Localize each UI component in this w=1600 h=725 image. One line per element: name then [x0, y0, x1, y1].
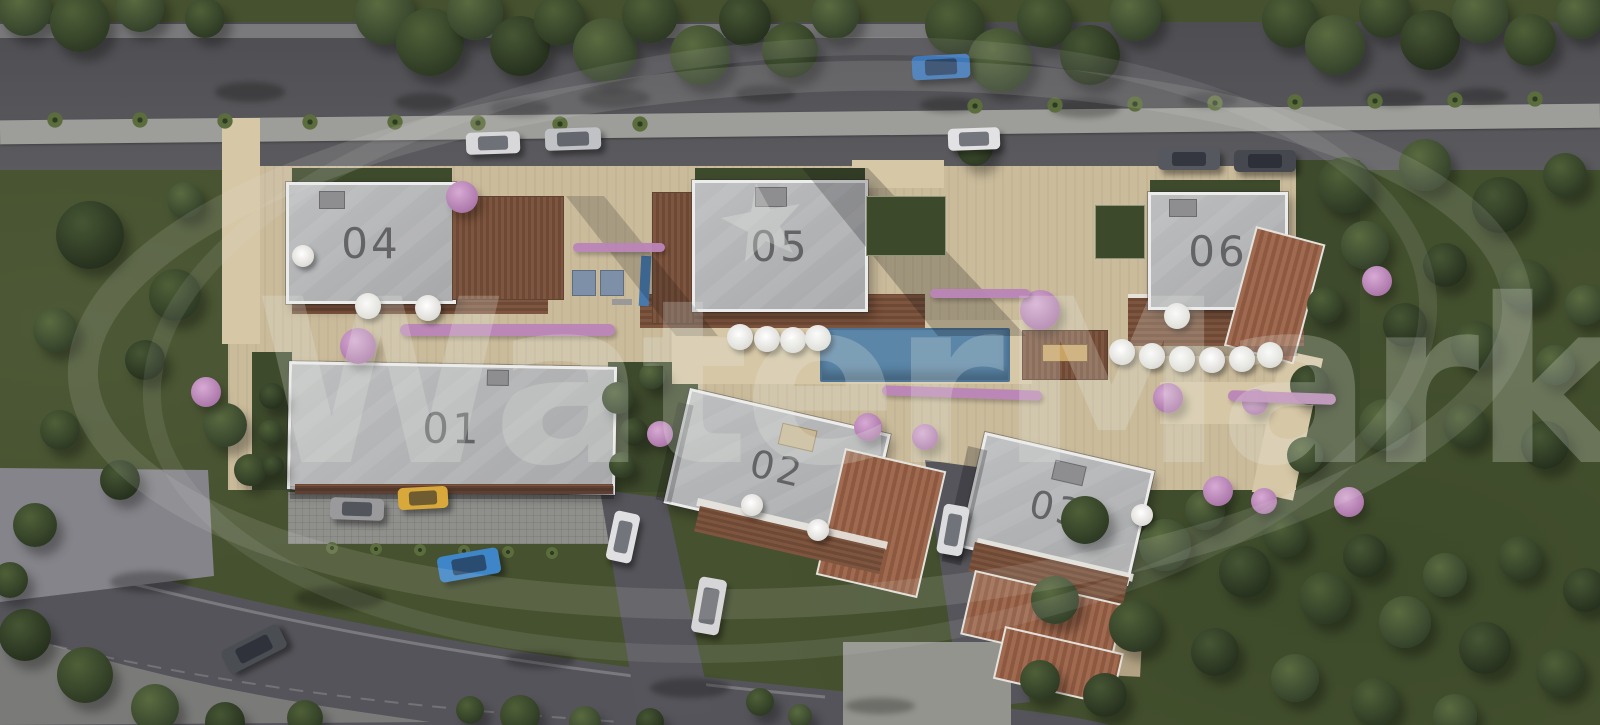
palm-tree — [46, 111, 64, 129]
tree — [1317, 157, 1373, 213]
ground-shadow — [845, 698, 915, 714]
tree — [262, 455, 284, 477]
umbrella — [741, 494, 763, 516]
ground-shadow — [580, 88, 650, 108]
tree — [639, 363, 665, 389]
palm-tree — [1446, 91, 1464, 109]
tree — [1504, 14, 1556, 66]
tree — [259, 383, 285, 409]
palm-tree — [1206, 94, 1224, 112]
car-glass — [450, 554, 487, 576]
umbrella — [355, 293, 381, 319]
tree — [33, 308, 77, 352]
tree — [50, 0, 110, 52]
palm-tree — [1046, 96, 1064, 114]
car-white-top-2 — [948, 127, 1001, 151]
umbrella — [805, 325, 831, 351]
tree — [1383, 303, 1427, 347]
umbrella — [1131, 504, 1153, 526]
tree — [1379, 596, 1431, 648]
tree — [0, 0, 51, 36]
tree — [762, 22, 818, 78]
blossom-tree — [191, 377, 221, 407]
tree — [125, 340, 165, 380]
car-dark-top-1 — [1158, 148, 1220, 170]
umbrella — [1199, 347, 1225, 373]
car-white-top-1 — [466, 131, 521, 155]
car-glass — [478, 135, 509, 150]
car-blue-bottom — [436, 547, 502, 583]
car-glass — [943, 513, 963, 547]
tree — [1359, 399, 1411, 451]
scenery-layer — [0, 0, 1600, 725]
tree — [1060, 25, 1120, 85]
umbrella — [1109, 339, 1135, 365]
umbrella — [1257, 342, 1283, 368]
tree — [1535, 345, 1575, 385]
palm-tree — [501, 545, 515, 559]
tree — [57, 647, 113, 703]
car-glass — [557, 131, 589, 146]
tree — [234, 454, 266, 486]
tree — [1521, 421, 1569, 469]
tree — [1083, 673, 1127, 717]
car-glass — [613, 520, 634, 554]
tree — [167, 182, 203, 218]
car-white-road-3 — [936, 503, 970, 557]
blossom-tree — [1251, 488, 1277, 514]
palm-tree — [1286, 93, 1304, 111]
tree — [1451, 321, 1499, 369]
umbrella — [1169, 346, 1195, 372]
car-yellow — [397, 486, 448, 511]
tree — [569, 706, 601, 725]
car-glass — [234, 633, 273, 664]
bougainvillea-hedge — [400, 324, 615, 336]
car-white-road-2 — [690, 576, 727, 636]
tree — [1109, 600, 1161, 652]
tree — [1109, 0, 1161, 41]
tree — [116, 0, 164, 32]
umbrella — [807, 519, 829, 541]
bougainvillea-hedge — [882, 385, 1042, 401]
car-glass — [1248, 154, 1283, 168]
tree — [1459, 622, 1511, 674]
car-white-road-1 — [605, 510, 641, 564]
tree — [287, 700, 323, 725]
palm-tree — [469, 114, 487, 132]
tree — [1399, 139, 1451, 191]
planter — [866, 196, 946, 256]
tree — [1563, 568, 1600, 612]
tree — [788, 704, 812, 725]
ground-shadow — [735, 85, 795, 103]
tree — [1423, 553, 1467, 597]
car-glass — [1172, 152, 1207, 166]
tree — [1498, 536, 1542, 580]
blossom-tree — [854, 413, 882, 441]
tree — [456, 696, 484, 724]
blossom-tree — [1334, 487, 1364, 517]
tree — [1499, 259, 1551, 311]
tree — [185, 0, 225, 38]
tree — [149, 269, 201, 321]
palm-tree — [545, 546, 559, 560]
tree — [40, 410, 80, 450]
tree — [1565, 285, 1600, 325]
tree — [13, 503, 57, 547]
bougainvillea-hedge — [930, 289, 1030, 298]
tree — [203, 403, 247, 447]
tree — [1271, 654, 1319, 702]
ground-shadow — [295, 586, 385, 610]
tree — [1020, 660, 1060, 700]
palm-tree — [1366, 92, 1384, 110]
tree — [1287, 437, 1323, 473]
blossom-tree — [1362, 266, 1392, 296]
tree — [1472, 177, 1528, 233]
tree — [1443, 403, 1487, 447]
tree — [1299, 572, 1351, 624]
palm-tree — [966, 97, 984, 115]
tree — [609, 452, 635, 478]
palm-tree — [325, 541, 339, 555]
bougainvillea-hedge — [573, 243, 665, 252]
umbrella — [727, 324, 753, 350]
tree — [1423, 243, 1467, 287]
ground-shadow — [395, 93, 455, 111]
palm-tree — [631, 115, 649, 133]
palm-tree — [1126, 95, 1144, 113]
palm-tree — [216, 112, 234, 130]
blossom-tree — [446, 181, 478, 213]
tree — [205, 702, 245, 725]
tree — [1305, 15, 1365, 75]
ground-shadow — [215, 82, 285, 102]
umbrella — [415, 295, 441, 321]
tree — [131, 684, 179, 725]
tree — [1452, 0, 1508, 43]
umbrella — [754, 326, 780, 352]
tree — [602, 382, 634, 414]
tree — [0, 562, 28, 598]
tree — [1139, 519, 1191, 571]
car-glass — [409, 490, 438, 506]
tree — [1556, 0, 1600, 39]
umbrella — [292, 245, 314, 267]
tree — [746, 688, 774, 716]
car-gray-parked — [330, 497, 385, 521]
aerial-site-plan: 04 05 06 01 02 03 — [0, 0, 1600, 725]
tree — [56, 201, 124, 269]
tree — [1343, 534, 1387, 578]
tree — [811, 0, 859, 39]
tree — [1543, 153, 1587, 197]
umbrella — [1229, 346, 1255, 372]
umbrella — [780, 327, 806, 353]
tree — [1307, 287, 1343, 323]
blossom-tree — [647, 421, 673, 447]
palm-tree — [1526, 90, 1544, 108]
ground-shadow — [650, 678, 730, 698]
car-glass — [698, 587, 720, 625]
car-dark-top-2 — [1234, 150, 1296, 172]
blossom-tree — [1153, 383, 1183, 413]
ground-shadow — [490, 99, 550, 117]
tree — [1031, 576, 1079, 624]
palm-tree — [369, 542, 383, 556]
umbrella — [1164, 303, 1190, 329]
blossom-tree — [912, 424, 938, 450]
car-blue-top — [911, 53, 970, 80]
tree — [1351, 678, 1399, 725]
ground-shadow — [110, 571, 190, 593]
tree — [500, 695, 540, 725]
car-silver-top — [545, 127, 602, 151]
palm-tree — [301, 113, 319, 131]
palm-tree — [386, 113, 404, 131]
tree — [670, 25, 730, 85]
car-glass — [924, 58, 957, 75]
palm-tree — [413, 543, 427, 557]
tree — [1263, 513, 1307, 557]
tree — [1061, 496, 1109, 544]
tree — [258, 420, 282, 444]
tree — [0, 609, 51, 661]
umbrella — [1139, 343, 1165, 369]
tree — [100, 460, 140, 500]
tree — [1536, 648, 1584, 696]
planter — [1095, 205, 1145, 259]
palm-tree — [131, 111, 149, 129]
blossom-tree — [1203, 476, 1233, 506]
car-dark-bottom — [220, 623, 289, 675]
tree — [1433, 694, 1477, 725]
tree — [1191, 628, 1239, 676]
car-glass — [959, 131, 989, 146]
tree — [620, 418, 648, 446]
tree — [1219, 546, 1271, 598]
tree — [1400, 10, 1460, 70]
ground-shadow — [505, 651, 575, 669]
car-glass — [342, 501, 373, 516]
tree — [1341, 221, 1389, 269]
tree — [636, 708, 664, 725]
blossom-tree — [340, 328, 376, 364]
